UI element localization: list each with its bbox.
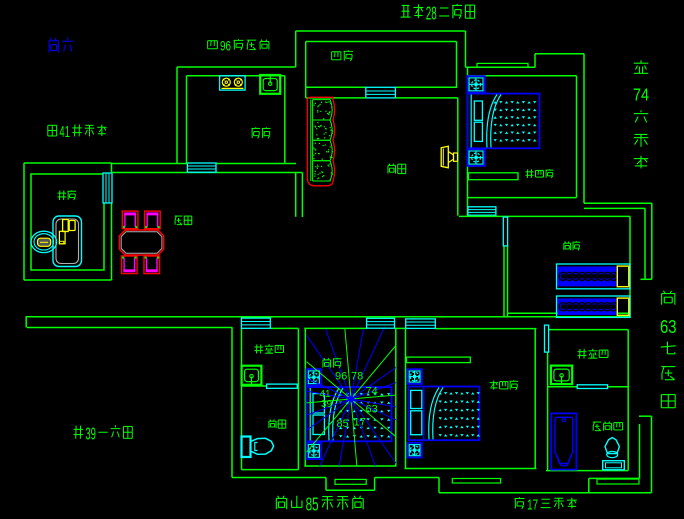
svg-text:74: 74	[366, 386, 378, 398]
svg-text:41: 41	[59, 124, 70, 141]
svg-text:78: 78	[351, 371, 363, 383]
svg-text:96: 96	[220, 39, 231, 54]
svg-text:96: 96	[335, 371, 347, 383]
svg-text:63: 63	[366, 404, 378, 416]
svg-text:85: 85	[306, 494, 319, 515]
svg-text:17: 17	[354, 417, 366, 429]
svg-text:28: 28	[426, 3, 437, 24]
svg-text:17: 17	[527, 498, 538, 514]
svg-text:39: 39	[321, 399, 333, 410]
svg-text:63: 63	[660, 316, 677, 337]
svg-text:39: 39	[85, 425, 96, 444]
svg-text:74: 74	[633, 86, 649, 105]
svg-text:85: 85	[337, 418, 349, 430]
